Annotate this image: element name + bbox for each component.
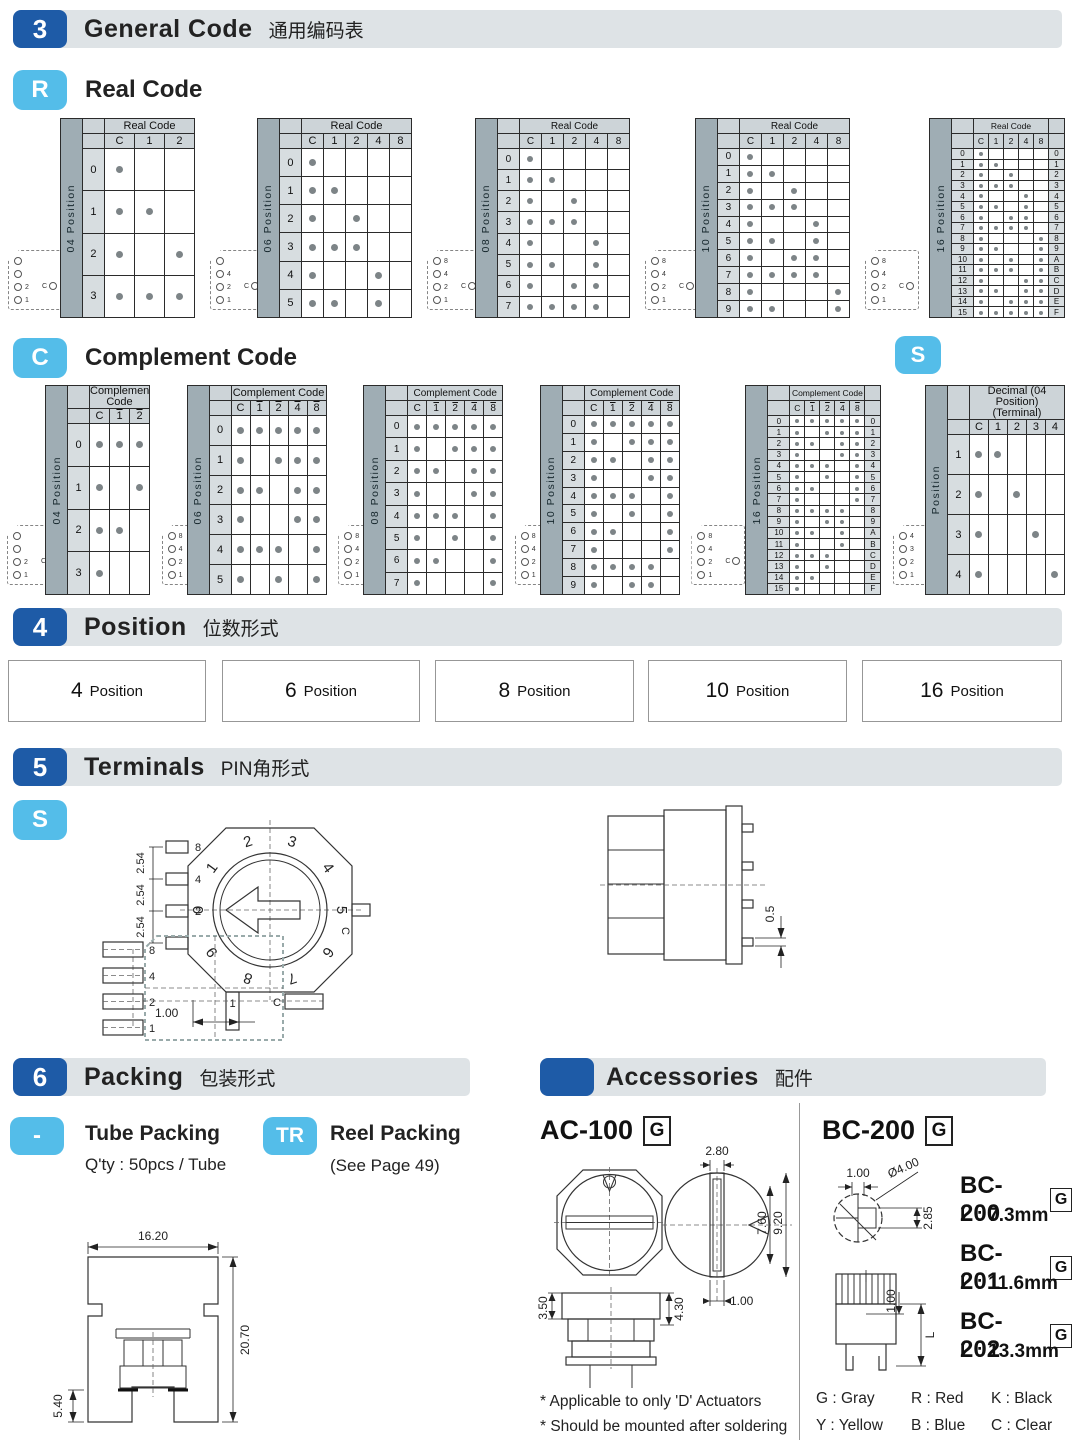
code-dot-cell	[110, 466, 130, 509]
code-dot-cell	[641, 577, 660, 595]
column-header: 2	[269, 401, 288, 416]
chip-pin: 2	[433, 282, 448, 292]
code-dot-cell	[835, 449, 850, 460]
code-table-title: Complement Code	[231, 386, 326, 401]
position-band-label: 08 Position	[480, 184, 492, 252]
code-dot-cell	[761, 233, 783, 250]
code-dot-cell	[1045, 435, 1064, 475]
table-row: 3	[695, 199, 849, 216]
code-dot-cell	[835, 416, 850, 427]
code-table-title: Real Code	[519, 119, 629, 134]
code-dot-cell	[989, 149, 1004, 160]
code-dot-cell	[739, 199, 761, 216]
table-row: 5	[475, 254, 629, 275]
code-dot-cell	[805, 284, 827, 301]
code-dot-cell	[783, 199, 805, 216]
code-dot-cell	[519, 170, 541, 191]
code-dot-cell	[820, 539, 835, 550]
code-dot-cell	[465, 550, 484, 572]
code-dot-cell	[603, 416, 622, 434]
code-dot-cell	[1004, 254, 1019, 265]
code-dot-cell	[585, 212, 607, 233]
code-dot-cell	[1045, 475, 1064, 515]
position-word: Position	[950, 683, 1003, 700]
column-header: 8	[1034, 134, 1049, 149]
chip-common-pin: C	[679, 282, 694, 290]
code-dot-cell	[805, 516, 820, 527]
svg-text:5: 5	[333, 906, 350, 914]
code-dot-cell	[739, 182, 761, 199]
code-dot-cell	[820, 550, 835, 561]
position-option-6: 6 Position	[222, 660, 420, 722]
code-dot-cell	[446, 505, 465, 527]
position-band-label: 16 Position	[935, 184, 947, 252]
code-dot-cell	[783, 149, 805, 166]
code-dot-cell	[641, 416, 660, 434]
chip-common-pin: C	[42, 282, 57, 290]
chip-pin: 4	[899, 531, 914, 541]
table-row: 8	[695, 284, 849, 301]
code-dot-cell	[850, 527, 865, 538]
code-dot-cell	[820, 471, 835, 482]
code-dot-cell	[465, 460, 484, 482]
code-dot-cell	[484, 483, 503, 505]
position-band-label: 04 Position	[65, 184, 77, 252]
code-dot-cell	[408, 505, 427, 527]
real-code-badge: R	[13, 70, 67, 110]
code-dot-cell	[301, 289, 323, 317]
code-table: 10 PositionReal CodeC12480123456789	[695, 118, 850, 318]
code-dot-cell	[988, 555, 1007, 595]
chip-pin: 1	[13, 570, 28, 580]
code-dot-cell	[988, 435, 1007, 475]
code-dot-cell	[607, 212, 629, 233]
code-dot-cell	[603, 433, 622, 451]
code-dot-cell	[408, 460, 427, 482]
code-dot-cell	[1034, 149, 1049, 160]
column-header: C	[519, 134, 541, 149]
code-dot-cell	[974, 201, 989, 212]
code-dot-cell	[827, 165, 849, 182]
code-dot-cell	[104, 275, 134, 317]
code-dot-cell	[805, 449, 820, 460]
code-dot-cell	[367, 261, 389, 289]
code-table: 08 PositionComplement CodeC124801234567	[363, 385, 503, 595]
position-band-label: 06 Position	[192, 456, 204, 524]
code-dot-cell	[110, 424, 130, 467]
code-dot-cell	[408, 438, 427, 460]
code-dot-cell	[130, 466, 150, 509]
code-dot-cell	[164, 233, 194, 275]
code-dot-cell	[1004, 233, 1019, 244]
ac100-note-2: * Should be mounted after soldering	[540, 1418, 787, 1436]
code-table: 16 PositionComplement CodeC1248001122334…	[745, 385, 881, 595]
tube-packing-badge: -	[10, 1117, 64, 1155]
code-dot-cell	[850, 561, 865, 572]
code-dot-cell	[563, 275, 585, 296]
code-dot-cell	[989, 180, 1004, 191]
code-dot-cell	[850, 460, 865, 471]
section-title-cn: 包装形式	[199, 1064, 275, 1091]
table-row: 4	[695, 216, 849, 233]
code-dot-cell	[408, 572, 427, 594]
switch-pinout-icon: 21C	[8, 250, 62, 310]
code-dot-cell	[90, 424, 110, 467]
switch-pinout-icon: 8421C	[865, 250, 919, 310]
code-dot-cell	[1004, 265, 1019, 276]
code-dot-cell	[164, 149, 194, 191]
code-dot-cell	[974, 170, 989, 181]
column-header: 4	[465, 401, 484, 416]
code-dot-cell	[484, 550, 503, 572]
code-dot-cell	[269, 475, 288, 505]
code-dot-cell	[541, 149, 563, 170]
code-dot-cell	[389, 289, 411, 317]
code-dot-cell	[974, 307, 989, 318]
bc200-variant-box: G	[925, 1116, 953, 1146]
complement-code-badge: C	[13, 338, 67, 378]
chip-pin: 1	[899, 570, 914, 580]
code-dot-cell	[607, 170, 629, 191]
code-dot-cell	[307, 565, 326, 595]
code-dot-cell	[603, 451, 622, 469]
code-dot-cell	[1007, 555, 1026, 595]
section-title-cn: 位数形式	[203, 614, 279, 641]
table-row: 4	[257, 261, 411, 289]
code-dot-cell	[584, 559, 603, 577]
table-header-row: 16 PositionReal Code	[930, 119, 1065, 134]
column-header: 2	[563, 134, 585, 149]
chip-pin: 3	[899, 544, 914, 554]
code-dot-cell	[427, 416, 446, 438]
code-dot-cell	[835, 516, 850, 527]
position-number: 6	[285, 679, 297, 703]
code-dot-cell	[850, 550, 865, 561]
code-dot-cell	[1019, 254, 1034, 265]
code-dot-cell	[1004, 159, 1019, 170]
code-dot-cell	[90, 509, 110, 552]
position-number: 8	[498, 679, 510, 703]
code-dot-cell	[820, 505, 835, 516]
code-dot-cell	[1019, 191, 1034, 202]
code-dot-cell	[805, 416, 820, 427]
position-word: Position	[304, 683, 357, 700]
code-dot-cell	[130, 552, 150, 595]
switch-pinout-icon: 421C	[210, 250, 264, 310]
code-dot-cell	[465, 572, 484, 594]
section-number-badge: 5	[13, 748, 67, 786]
table-header-row: 08 PositionComplement Code	[364, 386, 503, 401]
code-dot-cell	[622, 523, 641, 541]
chip-pin: 1	[344, 570, 359, 580]
code-dot-cell	[465, 483, 484, 505]
code-dot-cell	[250, 416, 269, 446]
code-dot-cell	[820, 527, 835, 538]
table-row: 0	[257, 149, 411, 177]
code-dot-cell	[1007, 435, 1026, 475]
table-row: 6	[475, 275, 629, 296]
terminals-side-view-drawing: 0.5	[600, 800, 800, 975]
code-dot-cell	[584, 433, 603, 451]
code-dot-cell	[231, 565, 250, 595]
chip-pin: 2	[14, 282, 29, 292]
code-dot-cell	[1004, 244, 1019, 255]
chip-pin: 4	[168, 544, 183, 554]
code-dot-cell	[739, 216, 761, 233]
code-dot-cell	[1034, 286, 1049, 297]
code-dot-cell	[974, 191, 989, 202]
code-dot-cell	[563, 233, 585, 254]
code-dot-cell	[739, 301, 761, 318]
chip-common-pin: C	[725, 557, 740, 565]
real-code-title: Real Code	[85, 76, 202, 104]
section-title: Terminals	[84, 753, 205, 782]
chip-common-pin: C	[461, 282, 476, 290]
code-dot-cell	[988, 515, 1007, 555]
svg-text:2.80: 2.80	[705, 1144, 729, 1158]
code-dot-cell	[1019, 244, 1034, 255]
code-dot-cell	[484, 416, 503, 438]
code-table-unit: 8421C10 PositionComplement CodeC12480123…	[515, 385, 680, 595]
chip-pin: 1	[521, 570, 536, 580]
chip-pin: 4	[216, 269, 231, 279]
reel-packing-title: Reel Packing	[330, 1122, 461, 1146]
svg-text:2.54: 2.54	[135, 884, 147, 905]
code-dot-cell	[641, 541, 660, 559]
position-word: Position	[517, 683, 570, 700]
code-dot-cell	[1034, 254, 1049, 265]
table-row: 9	[695, 301, 849, 318]
code-dot-cell	[739, 165, 761, 182]
code-table: 04 PositionReal CodeC120123	[60, 118, 195, 318]
svg-text:1.00: 1.00	[884, 1289, 898, 1313]
switch-pinout-icon: 8421C	[691, 525, 745, 585]
code-dot-cell	[563, 191, 585, 212]
svg-text:7.60: 7.60	[755, 1211, 769, 1235]
code-table-unit: 4321CPositionDecimal (04 Position)(Termi…	[893, 385, 1065, 595]
position-band-label: Position	[930, 465, 942, 514]
column-header: 2	[622, 401, 641, 416]
code-dot-cell	[563, 254, 585, 275]
column-header-row: C1248	[695, 134, 849, 149]
code-dot-cell	[541, 254, 563, 275]
code-dot-cell	[1019, 307, 1034, 318]
code-dot-cell	[519, 254, 541, 275]
code-dot-cell	[1034, 180, 1049, 191]
tube-packing-drawing: 16.20 20.70 5.40	[40, 1212, 260, 1442]
code-dot-cell	[345, 261, 367, 289]
code-dot-cell	[269, 445, 288, 475]
svg-text:4.30: 4.30	[672, 1297, 686, 1321]
chip-pin: 8	[697, 531, 712, 541]
complement-code-tables: 21C04 PositionComplement CodeC1201238421…	[7, 385, 1065, 595]
column-header: C	[90, 409, 110, 424]
section-packing-header: Packing 包装形式	[40, 1058, 470, 1096]
code-dot-cell	[541, 212, 563, 233]
code-dot-cell	[989, 222, 1004, 233]
code-dot-cell	[607, 275, 629, 296]
code-dot-cell	[307, 505, 326, 535]
code-dot-cell	[641, 451, 660, 469]
table-header-row: 06 PositionReal Code	[257, 119, 411, 134]
code-dot-cell	[805, 561, 820, 572]
code-dot-cell	[1004, 170, 1019, 181]
code-dot-cell	[1004, 275, 1019, 286]
code-dot-cell	[805, 250, 827, 267]
code-dot-cell	[989, 170, 1004, 181]
column-header: 1	[250, 401, 269, 416]
code-dot-cell	[790, 561, 805, 572]
chip-pin: 2	[651, 282, 666, 292]
table-row: 2	[475, 191, 629, 212]
column-header: 1	[761, 134, 783, 149]
chip-pin: 1	[14, 295, 29, 305]
code-dot-cell	[1007, 515, 1026, 555]
code-dot-cell	[761, 267, 783, 284]
code-table-title: Real Code	[301, 119, 411, 134]
code-dot-cell	[519, 233, 541, 254]
code-dot-cell	[541, 170, 563, 191]
code-dot-cell	[1004, 286, 1019, 297]
code-table-unit: 8421C08 PositionComplement CodeC12480123…	[338, 385, 503, 595]
code-dot-cell	[835, 505, 850, 516]
ac100-model: AC-100	[540, 1115, 633, 1146]
column-header: C	[584, 401, 603, 416]
svg-text:20.70: 20.70	[238, 1325, 252, 1355]
code-dot-cell	[783, 216, 805, 233]
column-header: 2	[1004, 134, 1019, 149]
code-dot-cell	[541, 296, 563, 317]
code-dot-cell	[989, 212, 1004, 223]
svg-text:9.20: 9.20	[771, 1211, 785, 1235]
code-dot-cell	[660, 559, 679, 577]
code-dot-cell	[603, 559, 622, 577]
code-dot-cell	[790, 449, 805, 460]
code-dot-cell	[427, 572, 446, 594]
code-dot-cell	[790, 572, 805, 583]
svg-text:2.54: 2.54	[135, 852, 147, 873]
code-dot-cell	[622, 469, 641, 487]
code-table: 04 PositionComplement CodeC120123	[45, 385, 150, 595]
code-dot-cell	[465, 505, 484, 527]
code-dot-cell	[850, 516, 865, 527]
position-number: 4	[71, 679, 83, 703]
code-dot-cell	[1034, 233, 1049, 244]
code-dot-cell	[603, 505, 622, 523]
code-dot-cell	[307, 475, 326, 505]
code-dot-cell	[427, 505, 446, 527]
code-dot-cell	[519, 275, 541, 296]
table-row: 1	[257, 177, 411, 205]
ac100-title: AC-100 G	[540, 1115, 671, 1146]
column-header: 4	[585, 134, 607, 149]
chip-pin: 8	[871, 256, 886, 266]
code-dot-cell	[820, 460, 835, 471]
code-dot-cell	[1034, 265, 1049, 276]
code-dot-cell	[367, 177, 389, 205]
column-header: 1	[427, 401, 446, 416]
svg-text:4: 4	[318, 860, 337, 877]
section-accessories-header: Accessories 配件	[570, 1058, 1046, 1096]
section-general-code-header: General Code 通用编码表	[40, 10, 1062, 48]
column-header: 1	[805, 401, 820, 416]
code-dot-cell	[585, 170, 607, 191]
code-dot-cell	[974, 180, 989, 191]
code-dot-cell	[827, 216, 849, 233]
svg-text:Ø4.00: Ø4.00	[886, 1155, 922, 1181]
code-dot-cell	[974, 275, 989, 286]
code-dot-cell	[805, 460, 820, 471]
section-number-badge: 3	[13, 10, 67, 48]
table-row: 2	[257, 205, 411, 233]
code-dot-cell	[850, 583, 865, 594]
code-dot-cell	[250, 565, 269, 595]
code-dot-cell	[603, 523, 622, 541]
ac100-knob-view-drawing: 2.80 7.60 9.20 1.00	[662, 1140, 807, 1310]
bc202-length: L : 13.3mm	[960, 1341, 1059, 1363]
code-dot-cell	[269, 416, 288, 446]
code-dot-cell	[989, 191, 1004, 202]
code-table-unit: 8421C08 PositionReal CodeC124801234567	[427, 118, 630, 318]
code-table: 16 PositionReal CodeC1248001122334455667…	[929, 118, 1065, 318]
code-dot-cell	[345, 177, 367, 205]
code-dot-cell	[603, 577, 622, 595]
column-header: 8	[389, 134, 411, 149]
chip-pin: 4	[651, 269, 666, 279]
code-dot-cell	[408, 550, 427, 572]
code-dot-cell	[974, 296, 989, 307]
code-dot-cell	[607, 296, 629, 317]
section-number-badge: 4	[13, 608, 67, 646]
code-dot-cell	[367, 205, 389, 233]
code-dot-cell	[427, 460, 446, 482]
code-dot-cell	[850, 416, 865, 427]
code-dot-cell	[820, 561, 835, 572]
code-dot-cell	[739, 250, 761, 267]
code-dot-cell	[790, 539, 805, 550]
ac100-note-1: * Applicable to only 'D' Actuators	[540, 1393, 761, 1411]
column-header: 8	[827, 134, 849, 149]
svg-text:1.00: 1.00	[730, 1294, 754, 1308]
code-dot-cell	[1045, 555, 1064, 595]
code-dot-cell	[805, 539, 820, 550]
code-dot-cell	[345, 205, 367, 233]
code-dot-cell	[301, 261, 323, 289]
svg-text:2: 2	[195, 906, 201, 918]
code-dot-cell	[519, 212, 541, 233]
code-dot-cell	[835, 561, 850, 572]
code-dot-cell	[790, 416, 805, 427]
chip-pin: 2	[871, 282, 886, 292]
column-header: 2	[783, 134, 805, 149]
code-dot-cell	[1034, 275, 1049, 286]
code-dot-cell	[820, 494, 835, 505]
code-dot-cell	[301, 233, 323, 261]
code-dot-cell	[974, 159, 989, 170]
column-header: 8	[660, 401, 679, 416]
code-dot-cell	[969, 475, 988, 515]
column-header: 4	[641, 401, 660, 416]
chip-pin: 1	[168, 570, 183, 580]
code-dot-cell	[739, 267, 761, 284]
code-dot-cell	[389, 233, 411, 261]
code-dot-cell	[989, 275, 1004, 286]
reel-packing-note: (See Page 49)	[330, 1156, 440, 1176]
code-dot-cell	[790, 494, 805, 505]
code-dot-cell	[783, 267, 805, 284]
column-header: 1	[323, 134, 345, 149]
complement-code-title: Complement Code	[85, 344, 297, 372]
